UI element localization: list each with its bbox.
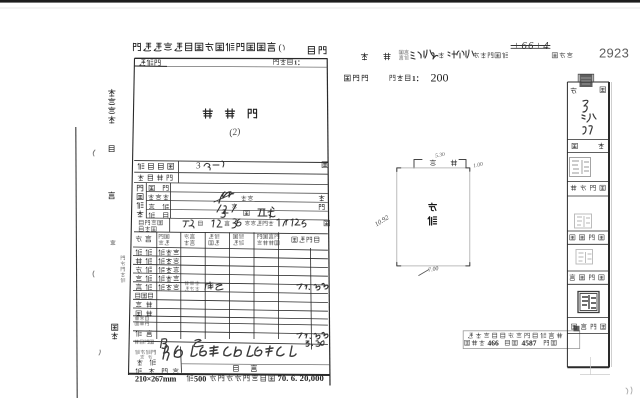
svg-text:2923: 2923 bbox=[599, 46, 629, 61]
svg-text:(2): (2) bbox=[228, 126, 241, 138]
svg-text:500: 500 bbox=[194, 375, 206, 384]
svg-text:10.92: 10.92 bbox=[374, 214, 391, 228]
svg-text:1.00: 1.00 bbox=[473, 162, 484, 170]
svg-text:5.30: 5.30 bbox=[435, 152, 446, 160]
svg-text:70. 6. 20,000: 70. 6. 20,000 bbox=[278, 373, 324, 383]
svg-text:4587: 4587 bbox=[522, 339, 537, 348]
svg-text:(: ( bbox=[279, 43, 282, 54]
svg-text:466: 466 bbox=[488, 339, 500, 348]
svg-text:200: 200 bbox=[431, 71, 449, 85]
svg-text:7.00: 7.00 bbox=[428, 266, 439, 274]
svg-text:+66+4: +66+4 bbox=[513, 41, 550, 52]
svg-text:1：: 1： bbox=[412, 74, 423, 83]
svg-text:210×267mm: 210×267mm bbox=[135, 375, 176, 384]
svg-text:1：: 1： bbox=[294, 60, 304, 67]
